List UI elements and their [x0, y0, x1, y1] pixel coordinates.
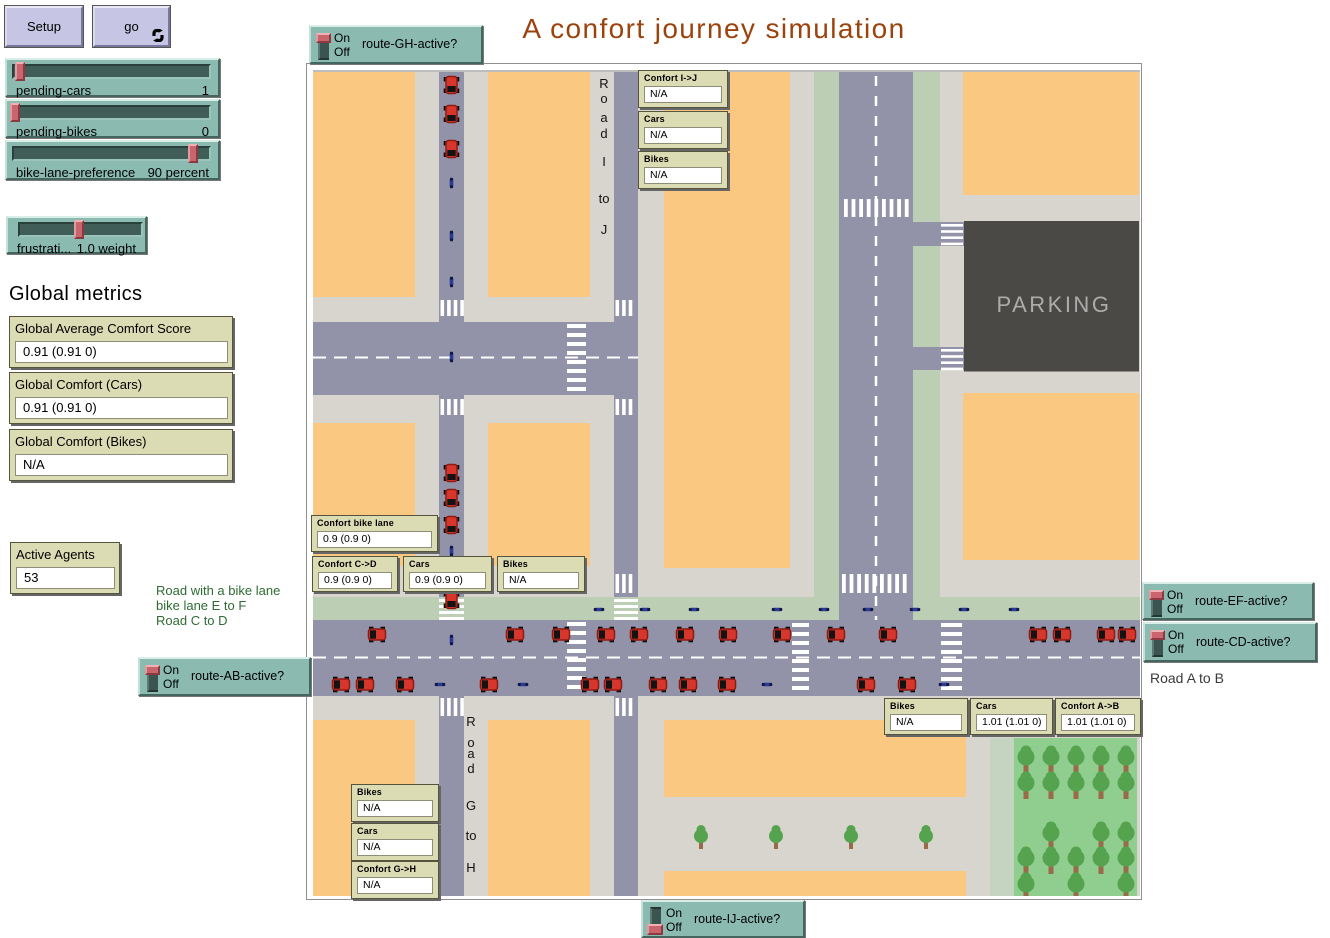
svg-text:d: d — [600, 126, 607, 141]
svg-text:to: to — [599, 191, 610, 206]
svg-text:R: R — [599, 76, 608, 91]
svg-text:R: R — [466, 714, 475, 729]
svg-text:d: d — [467, 761, 474, 776]
svg-text:PARKING: PARKING — [997, 292, 1112, 317]
svg-text:o: o — [600, 91, 607, 106]
svg-text:to: to — [466, 828, 477, 843]
svg-text:G: G — [466, 798, 476, 813]
svg-text:H: H — [466, 860, 475, 875]
svg-text:I: I — [602, 154, 606, 169]
svg-text:a: a — [600, 110, 608, 125]
svg-text:J: J — [601, 222, 608, 237]
svg-text:a: a — [467, 746, 475, 761]
